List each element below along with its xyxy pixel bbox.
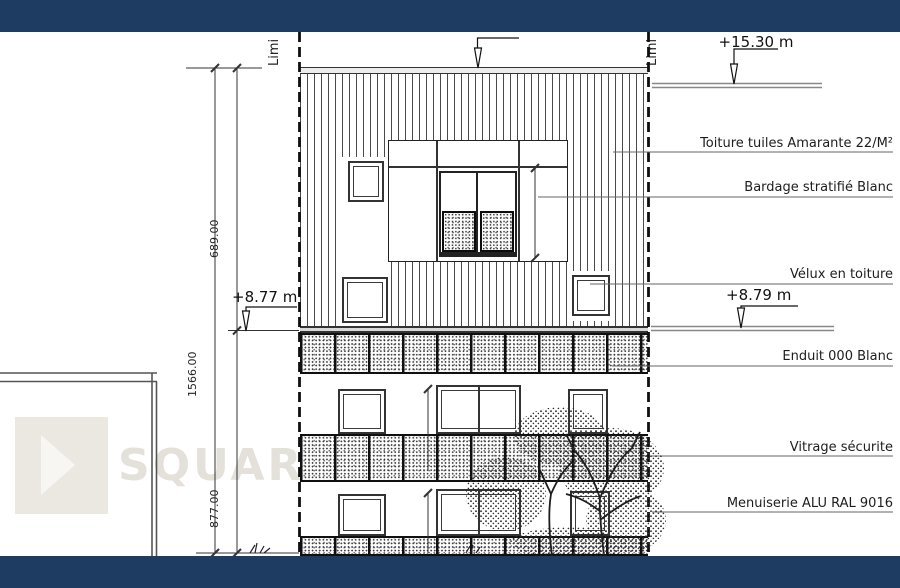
- height-line-879: [651, 327, 834, 331]
- annotation-velux: Vélux en toiture: [560, 267, 893, 282]
- level-value-ridge: +15.30 m: [708, 33, 804, 51]
- annotation-toiture: Toiture tuiles Amarante 22/M²: [560, 136, 893, 151]
- level-flag-ridge: [475, 38, 520, 68]
- annotation-enduit: Enduit 000 Blanc: [560, 349, 893, 364]
- elevation-drawing-page: SQUARE HABITAT: [0, 0, 900, 588]
- bottom-frame-bar: [0, 556, 900, 588]
- dimension-window-lower: [424, 489, 432, 553]
- annotation-vitrage: Vitrage sécurite: [560, 440, 893, 455]
- annotation-bardage: Bardage stratifié Blanc: [560, 180, 893, 195]
- height-line-1530: [652, 84, 822, 88]
- dimension-window-middle: [424, 385, 432, 470]
- tree: [466, 407, 666, 559]
- level-value-eave-left: +8.77 m: [232, 288, 297, 306]
- level-flag-1530: [731, 49, 779, 84]
- level-value-eave-right: +8.79 m: [726, 286, 791, 304]
- ground-tufts: [250, 543, 480, 553]
- level-flag-879: [738, 306, 799, 328]
- annotation-menuiserie: Menuiserie ALU RAL 9016: [560, 496, 893, 511]
- neighbor-wall: [0, 373, 157, 556]
- level-flag-877: [243, 307, 298, 331]
- top-frame-bar: [0, 0, 900, 32]
- dimension-window-upper: [531, 164, 539, 262]
